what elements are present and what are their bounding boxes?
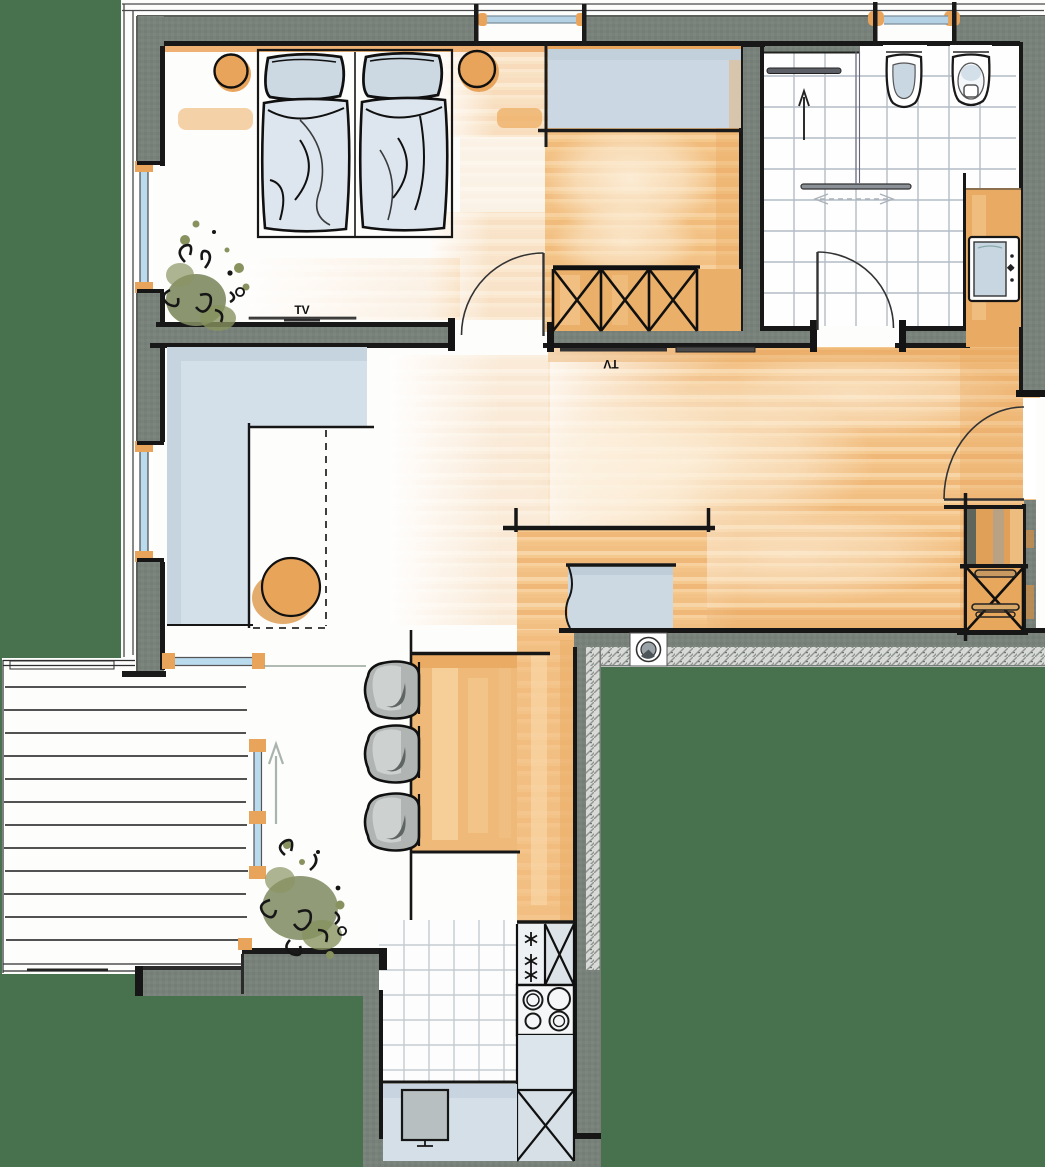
svg-text:TV: TV [603,357,618,371]
svg-text:TV: TV [294,303,309,317]
